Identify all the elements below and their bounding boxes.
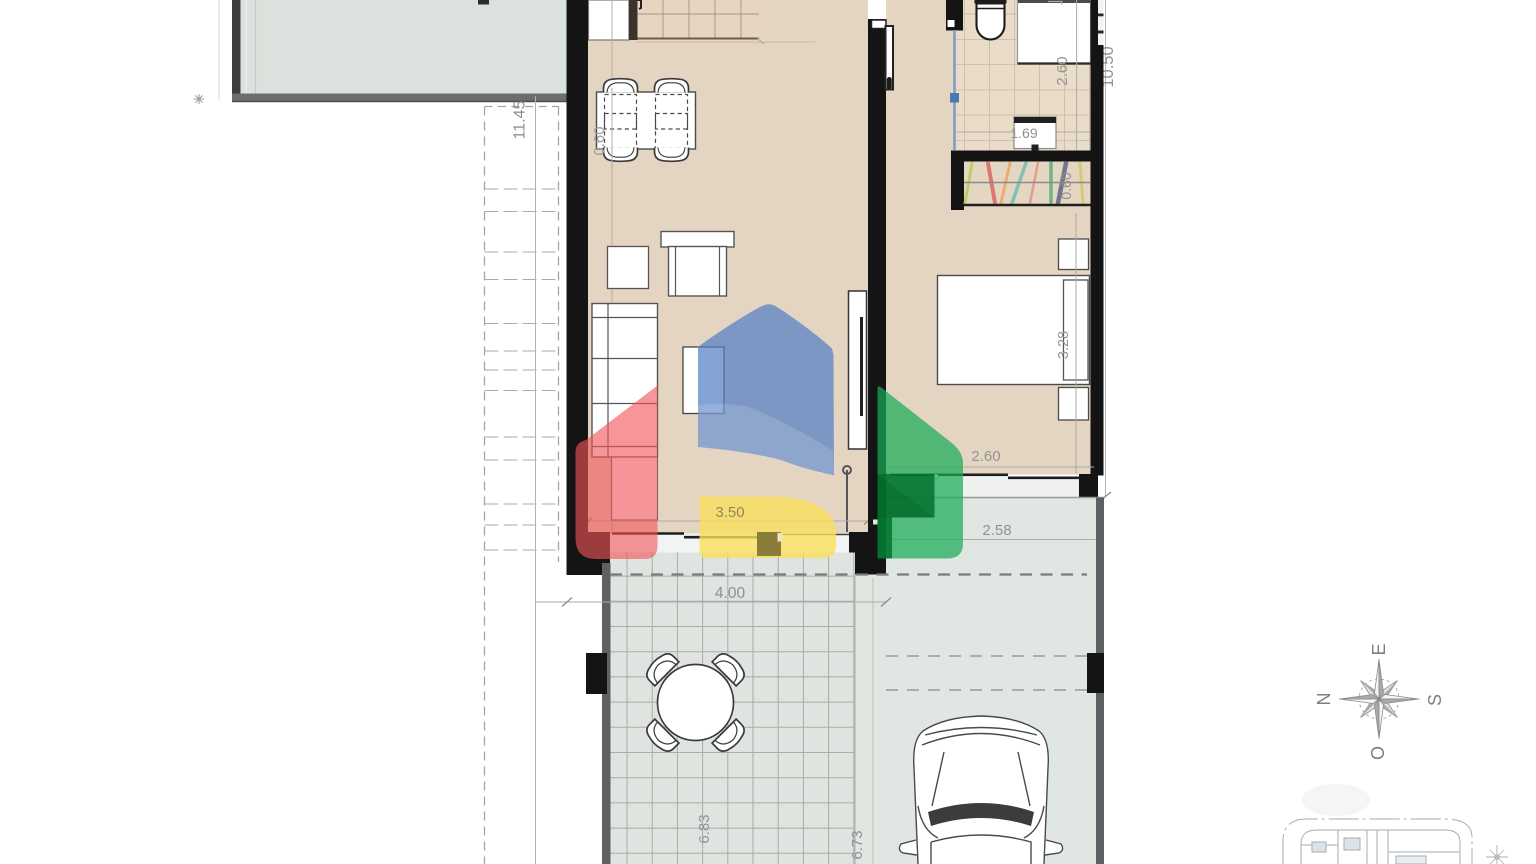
svg-text:S: S: [1425, 694, 1445, 706]
svg-text:O: O: [1368, 746, 1388, 760]
svg-text:2.58: 2.58: [982, 522, 1011, 539]
svg-text:2.60: 2.60: [1054, 56, 1071, 85]
svg-text:2.60: 2.60: [971, 448, 1000, 465]
svg-text:6.73: 6.73: [849, 830, 866, 859]
svg-text:E: E: [1369, 643, 1389, 655]
svg-text:3.50: 3.50: [715, 504, 744, 521]
svg-text:0.60: 0.60: [1058, 172, 1074, 199]
svg-text:3.28: 3.28: [1056, 331, 1072, 359]
svg-text:6.83: 6.83: [696, 814, 713, 843]
svg-text:11.45: 11.45: [512, 100, 529, 139]
svg-text:0.60: 0.60: [591, 126, 608, 155]
svg-text:4.00: 4.00: [715, 585, 746, 602]
svg-text:N: N: [1314, 693, 1334, 706]
svg-text:1.69: 1.69: [1010, 125, 1037, 141]
